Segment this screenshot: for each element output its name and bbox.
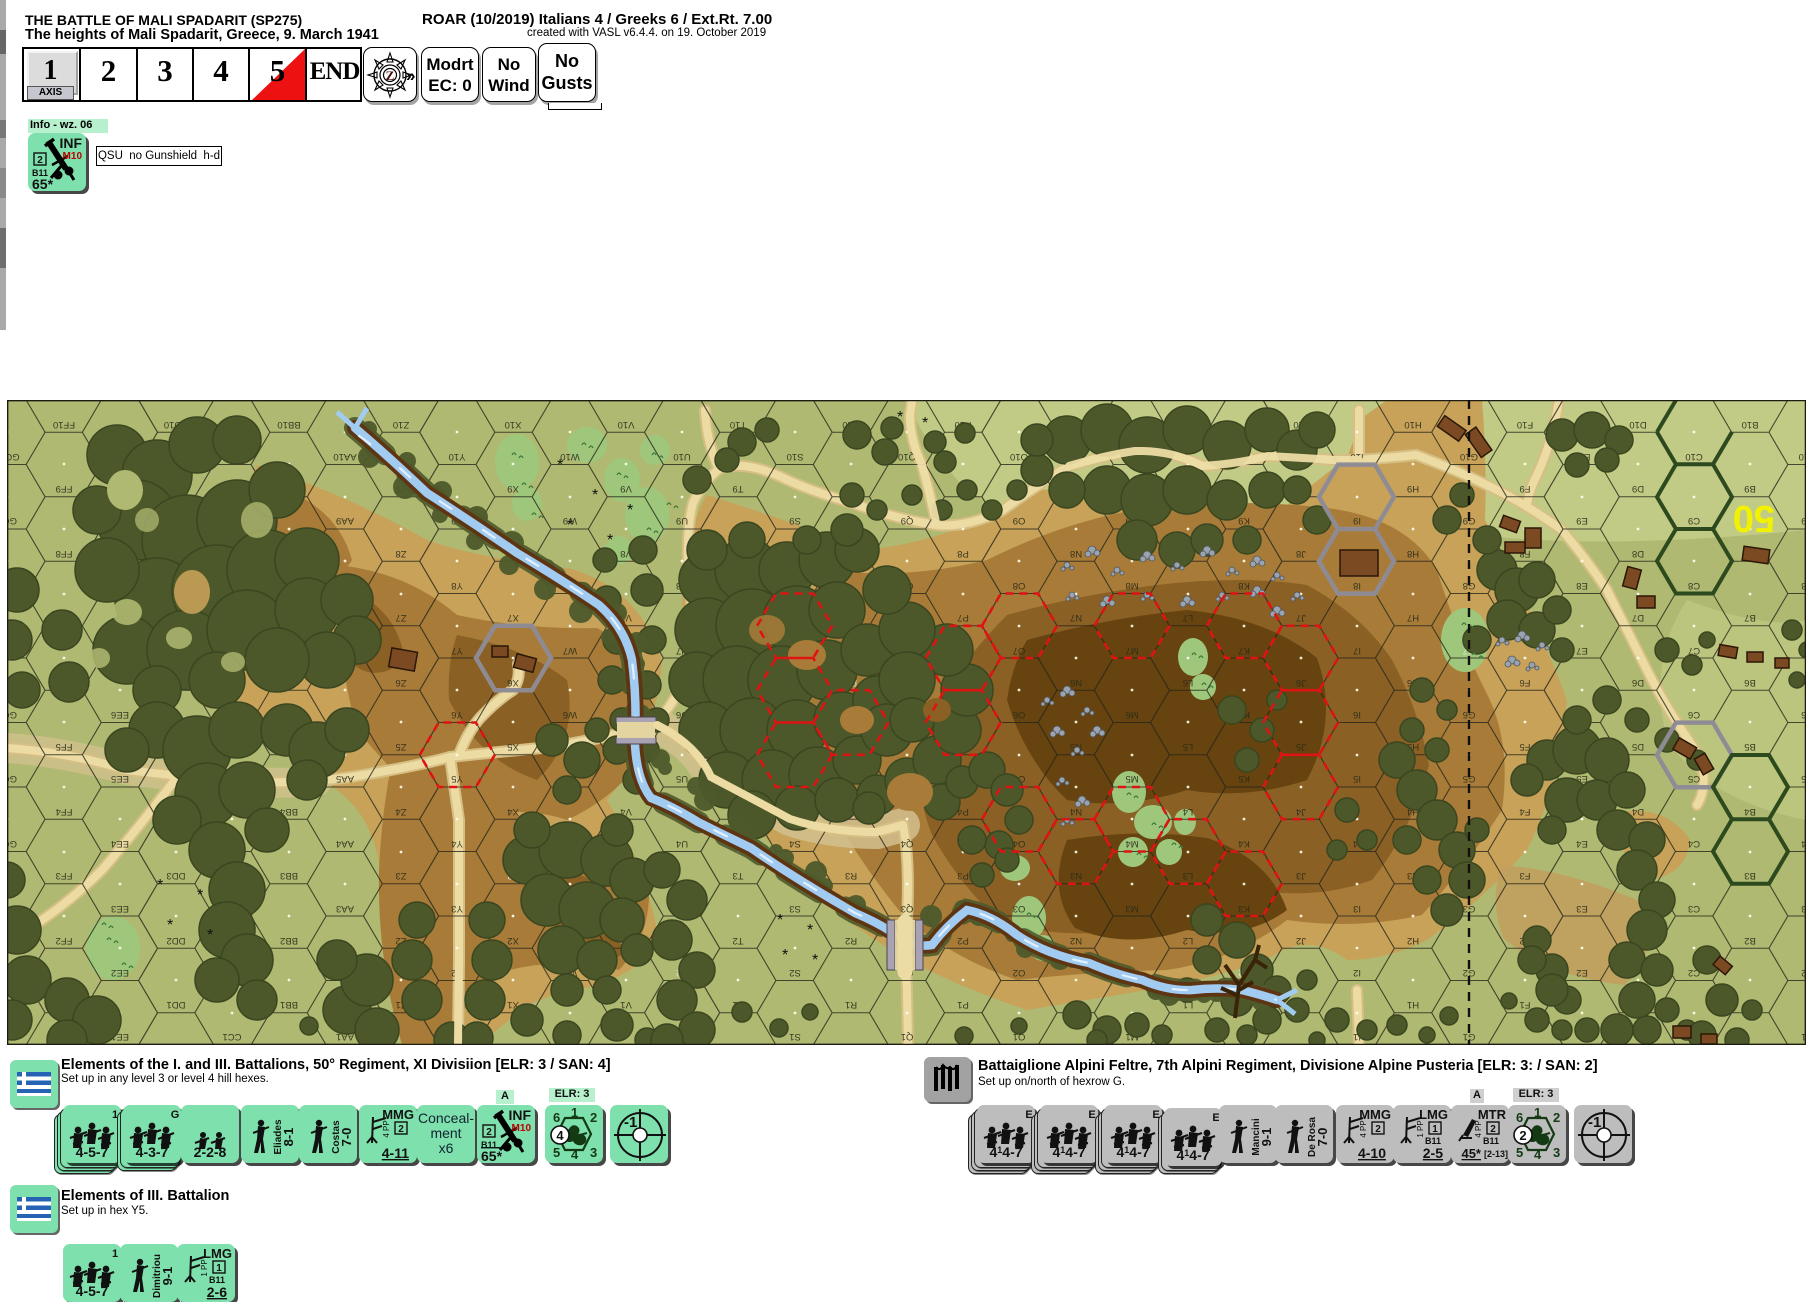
svg-text:M4: M4 <box>1125 838 1138 849</box>
svg-text:LMG: LMG <box>203 1246 232 1261</box>
svg-text:EE3: EE3 <box>111 903 129 914</box>
svg-text:N7: N7 <box>1070 612 1082 623</box>
svg-text:B3: B3 <box>1744 870 1756 881</box>
svg-text:U9: U9 <box>676 515 688 526</box>
svg-text:1: 1 <box>571 1105 578 1120</box>
svg-text:Z10: Z10 <box>393 419 409 430</box>
svg-text:K8: K8 <box>1238 580 1250 591</box>
svg-text:FF9: FF9 <box>56 483 73 494</box>
svg-text:GG10: GG10 <box>7 451 20 462</box>
svg-text:9-1: 9-1 <box>160 1267 175 1286</box>
svg-text:GG5: GG5 <box>7 773 17 784</box>
svg-text:2: 2 <box>1375 1124 1381 1135</box>
svg-text:*: * <box>167 917 173 934</box>
svg-text:GG4: GG4 <box>7 838 17 849</box>
svg-text:E9: E9 <box>1576 515 1588 526</box>
svg-text:I7: I7 <box>1353 645 1361 656</box>
svg-text:P8: P8 <box>957 548 969 559</box>
svg-text:-1: -1 <box>624 1114 637 1131</box>
svg-text:J3: J3 <box>1296 870 1306 881</box>
svg-text:5: 5 <box>1516 1145 1523 1160</box>
svg-text:Z4: Z4 <box>395 806 406 817</box>
svg-text:M5: M5 <box>1125 773 1138 784</box>
svg-text:*: * <box>777 912 783 929</box>
svg-text:AA4: AA4 <box>336 838 354 849</box>
svg-text:L4: L4 <box>1183 806 1194 817</box>
svg-text:AA10: AA10 <box>333 451 356 462</box>
svg-text:Q4: Q4 <box>901 838 914 849</box>
svg-text:2: 2 <box>1490 1124 1496 1135</box>
svg-text:4: 4 <box>571 1147 579 1162</box>
svg-text:6: 6 <box>553 1110 560 1125</box>
svg-text:F9: F9 <box>1519 483 1530 494</box>
svg-text:7-0: 7-0 <box>339 1128 354 1147</box>
svg-text:*: * <box>567 517 573 534</box>
svg-text:E3: E3 <box>1576 903 1588 914</box>
svg-text:2: 2 <box>590 1110 597 1125</box>
svg-text:K9: K9 <box>1238 515 1250 526</box>
svg-text:-1: -1 <box>1588 1114 1601 1131</box>
svg-text:Y10: Y10 <box>449 451 466 462</box>
svg-text:O6: O6 <box>1013 709 1026 720</box>
svg-text:5: 5 <box>553 1145 560 1160</box>
svg-text:Z7: Z7 <box>395 612 406 623</box>
svg-text:414-7: 414-7 <box>989 1144 1022 1160</box>
svg-text:Y5: Y5 <box>451 773 463 784</box>
svg-text:2: 2 <box>1519 1128 1526 1143</box>
svg-text:N3: N3 <box>1070 870 1082 881</box>
svg-text:Y4: Y4 <box>451 838 463 849</box>
svg-text:J8: J8 <box>1296 548 1306 559</box>
svg-text:M8: M8 <box>1125 580 1138 591</box>
svg-text:S1: S1 <box>789 1031 801 1042</box>
svg-text:U10: U10 <box>673 451 690 462</box>
svg-text:S3: S3 <box>789 903 801 914</box>
svg-text:414-7: 414-7 <box>1116 1144 1149 1160</box>
svg-text:H7: H7 <box>1407 612 1419 623</box>
svg-text:Q1: Q1 <box>901 1031 914 1042</box>
svg-text:F3: F3 <box>1519 870 1530 881</box>
svg-text:T2: T2 <box>732 935 743 946</box>
svg-text:EE2: EE2 <box>111 967 129 978</box>
svg-text:D5: D5 <box>1632 741 1644 752</box>
svg-text:S10: S10 <box>787 451 804 462</box>
svg-text:D4: D4 <box>1632 806 1644 817</box>
svg-text:O3: O3 <box>1013 903 1026 914</box>
svg-text:INF: INF <box>508 1107 531 1123</box>
svg-text:N6: N6 <box>1070 677 1082 688</box>
svg-text:FF2: FF2 <box>56 935 73 946</box>
svg-text:L2: L2 <box>1183 935 1194 946</box>
svg-text:C6: C6 <box>1688 709 1700 720</box>
svg-text:P2: P2 <box>957 935 969 946</box>
svg-text:MMG: MMG <box>382 1107 414 1122</box>
svg-text:BB2: BB2 <box>280 935 298 946</box>
svg-text:I6: I6 <box>1353 709 1361 720</box>
svg-text:*: * <box>782 947 788 964</box>
svg-text:Q9: Q9 <box>901 515 914 526</box>
svg-text:*: * <box>922 415 928 432</box>
svg-text:1: 1 <box>1534 1105 1541 1120</box>
svg-text:1: 1 <box>216 1263 222 1274</box>
svg-text:M3: M3 <box>1125 903 1138 914</box>
svg-text:X7: X7 <box>507 612 519 623</box>
svg-text:H9: H9 <box>1407 483 1419 494</box>
svg-text:X6: X6 <box>507 677 519 688</box>
svg-text:Z6: Z6 <box>395 677 406 688</box>
svg-text:FF5: FF5 <box>56 741 73 752</box>
svg-text:BB1: BB1 <box>280 999 298 1010</box>
svg-text:N4: N4 <box>1070 806 1082 817</box>
svg-text:GG9: GG9 <box>7 515 17 526</box>
svg-text:Y8: Y8 <box>451 580 463 591</box>
svg-text:4 PP: 4 PP <box>1359 1120 1368 1137</box>
svg-text:P7: P7 <box>957 612 969 623</box>
svg-text:MMG: MMG <box>1359 1107 1391 1122</box>
svg-text:C5: C5 <box>1688 773 1700 784</box>
svg-text:M10: M10 <box>63 151 83 162</box>
svg-text:M6: M6 <box>1125 709 1138 720</box>
svg-text:2: 2 <box>486 1127 492 1138</box>
svg-text:D6: D6 <box>1632 677 1644 688</box>
svg-text:L7: L7 <box>1183 612 1194 623</box>
svg-text:*: * <box>157 877 163 894</box>
svg-text:X4: X4 <box>507 806 519 817</box>
svg-text:E2: E2 <box>1576 967 1588 978</box>
svg-text:C3: C3 <box>1688 903 1700 914</box>
svg-text:D7: D7 <box>1632 612 1644 623</box>
svg-text:FF4: FF4 <box>56 806 73 817</box>
svg-text:V10: V10 <box>618 419 635 430</box>
svg-text:C8: C8 <box>1688 580 1700 591</box>
svg-text:Y3: Y3 <box>451 903 463 914</box>
svg-text:O8: O8 <box>1013 580 1026 591</box>
svg-text:INF: INF <box>59 135 82 151</box>
svg-text:N8: N8 <box>1070 548 1082 559</box>
svg-text:O2: O2 <box>1013 967 1026 978</box>
svg-text:S9: S9 <box>789 515 801 526</box>
svg-text:4-11: 4-11 <box>382 1145 409 1161</box>
svg-text:T3: T3 <box>732 870 743 881</box>
svg-text:DD3: DD3 <box>166 870 185 881</box>
svg-text:J4: J4 <box>1296 806 1306 817</box>
svg-text:H1: H1 <box>1407 999 1419 1010</box>
svg-text:H10: H10 <box>1404 419 1421 430</box>
svg-text:J6: J6 <box>1296 677 1306 688</box>
svg-text:AA5: AA5 <box>336 773 354 784</box>
svg-text:65*: 65* <box>481 1148 503 1163</box>
svg-text:C7: C7 <box>1688 645 1700 656</box>
svg-text:BB10: BB10 <box>277 419 300 430</box>
svg-text:AA9: AA9 <box>336 515 354 526</box>
svg-text:K4: K4 <box>1238 838 1250 849</box>
svg-text:X2: X2 <box>507 935 519 946</box>
svg-text:D8: D8 <box>1632 548 1644 559</box>
svg-text:AA3: AA3 <box>336 903 354 914</box>
svg-text:Q3: Q3 <box>901 903 914 914</box>
svg-text:4-3-7: 4-3-7 <box>136 1144 169 1160</box>
svg-text:B2: B2 <box>1744 935 1756 946</box>
svg-text:S2: S2 <box>789 967 801 978</box>
svg-text:4: 4 <box>1534 1147 1542 1162</box>
svg-text:E7: E7 <box>1576 645 1588 656</box>
svg-text:C9: C9 <box>1688 515 1700 526</box>
svg-text:4-5-7: 4-5-7 <box>76 1144 109 1160</box>
svg-text:B9: B9 <box>1744 483 1756 494</box>
svg-text:*: * <box>207 927 213 944</box>
svg-text:EE5: EE5 <box>111 773 129 784</box>
svg-text:50: 50 <box>1733 497 1775 539</box>
svg-text:O9: O9 <box>1013 515 1026 526</box>
svg-text:I3: I3 <box>1353 903 1361 914</box>
svg-text:I8: I8 <box>1353 580 1361 591</box>
svg-text:4: 4 <box>556 1128 564 1143</box>
svg-text:J5: J5 <box>1296 741 1306 752</box>
svg-text:4-10: 4-10 <box>1358 1145 1386 1161</box>
svg-text:[2-13]: [2-13] <box>1484 1149 1508 1159</box>
svg-text:2-6: 2-6 <box>207 1284 227 1300</box>
svg-text:*: * <box>807 922 813 939</box>
svg-text:B10: B10 <box>1742 419 1759 430</box>
svg-text:U5: U5 <box>676 773 688 784</box>
svg-text:W6: W6 <box>563 709 577 720</box>
svg-text:V1: V1 <box>620 999 632 1010</box>
svg-text:2: 2 <box>1553 1110 1560 1125</box>
svg-text:*: * <box>607 532 613 549</box>
svg-text:1: 1 <box>1432 1124 1438 1135</box>
svg-text:M7: M7 <box>1125 645 1138 656</box>
svg-text:B11: B11 <box>1483 1136 1499 1146</box>
svg-text:D9: D9 <box>1632 483 1644 494</box>
svg-text:Y7: Y7 <box>451 645 463 656</box>
svg-text:9-1: 9-1 <box>1259 1128 1274 1147</box>
svg-text:B6: B6 <box>1744 677 1756 688</box>
svg-text:H2: H2 <box>1407 935 1419 946</box>
svg-text:4-5-7: 4-5-7 <box>76 1283 109 1299</box>
svg-text:3: 3 <box>1553 1145 1560 1160</box>
svg-text:4 PP: 4 PP <box>382 1120 391 1137</box>
svg-text:K5: K5 <box>1238 773 1250 784</box>
svg-text:L5: L5 <box>1183 741 1194 752</box>
svg-text:3: 3 <box>590 1145 597 1160</box>
svg-text:O7: O7 <box>1013 645 1026 656</box>
svg-text:X9: X9 <box>507 483 519 494</box>
svg-text:C10: C10 <box>1685 451 1702 462</box>
svg-text:U4: U4 <box>676 838 688 849</box>
svg-text:*: * <box>627 502 633 519</box>
svg-text:Z5: Z5 <box>395 741 406 752</box>
svg-text:DD2: DD2 <box>166 935 185 946</box>
svg-text:K3: K3 <box>1238 903 1250 914</box>
svg-text:X5: X5 <box>507 741 519 752</box>
svg-text:R3: R3 <box>845 870 857 881</box>
svg-text:D10: D10 <box>1629 419 1646 430</box>
svg-text:N2: N2 <box>1070 935 1082 946</box>
svg-text:C4: C4 <box>1688 838 1700 849</box>
svg-text:B4: B4 <box>1744 806 1756 817</box>
svg-text:LMG: LMG <box>1419 1107 1448 1122</box>
svg-text:FF3: FF3 <box>56 870 73 881</box>
svg-text:T9: T9 <box>732 483 743 494</box>
svg-text:K7: K7 <box>1238 645 1250 656</box>
svg-text:*: * <box>592 487 598 504</box>
svg-text:*: * <box>197 887 203 904</box>
svg-text:G: G <box>171 1109 180 1121</box>
svg-text:L6: L6 <box>1183 677 1194 688</box>
svg-text:S4: S4 <box>789 838 801 849</box>
svg-text:F6: F6 <box>1519 677 1530 688</box>
svg-text:F10: F10 <box>1517 419 1533 430</box>
svg-text:1: 1 <box>112 1248 118 1260</box>
svg-text:EE4: EE4 <box>111 838 129 849</box>
svg-text:V9: V9 <box>620 483 632 494</box>
svg-text:7-0: 7-0 <box>1315 1128 1330 1147</box>
svg-text:EE6: EE6 <box>111 709 129 720</box>
svg-text:DD1: DD1 <box>166 999 185 1010</box>
svg-text:P1: P1 <box>957 999 969 1010</box>
svg-text:B5: B5 <box>1744 741 1756 752</box>
svg-text:6: 6 <box>1516 1110 1523 1125</box>
svg-text:J7: J7 <box>1296 612 1306 623</box>
svg-text:E4: E4 <box>1576 838 1588 849</box>
svg-text:F1: F1 <box>1519 999 1530 1010</box>
svg-text:M10: M10 <box>512 1123 532 1134</box>
svg-text:Z3: Z3 <box>395 870 406 881</box>
svg-text:GG6: GG6 <box>7 709 17 720</box>
svg-text:J2: J2 <box>1296 935 1306 946</box>
svg-text:414-7: 414-7 <box>1052 1144 1085 1160</box>
svg-text:»: » <box>406 66 415 85</box>
svg-text:I9: I9 <box>1353 515 1361 526</box>
svg-text:Y6: Y6 <box>451 709 463 720</box>
svg-text:1 PP: 1 PP <box>1416 1120 1425 1137</box>
svg-text:MTR: MTR <box>1478 1107 1507 1122</box>
svg-text:Z: Z <box>386 68 395 83</box>
svg-text:65*: 65* <box>32 176 54 191</box>
svg-text:O4: O4 <box>1013 838 1026 849</box>
svg-text:X10: X10 <box>505 419 522 430</box>
svg-text:F4: F4 <box>1519 806 1530 817</box>
svg-text:H8: H8 <box>1407 548 1419 559</box>
svg-text:P3: P3 <box>957 870 969 881</box>
svg-text:414-7: 414-7 <box>1176 1147 1209 1163</box>
svg-text:2-2-8: 2-2-8 <box>194 1144 227 1160</box>
svg-text:2: 2 <box>37 155 43 166</box>
svg-text:CC1: CC1 <box>222 1031 241 1042</box>
svg-text:I2: I2 <box>1353 967 1361 978</box>
svg-text:*: * <box>897 409 903 426</box>
svg-text:*: * <box>812 952 818 969</box>
svg-text:FF10: FF10 <box>53 419 75 430</box>
svg-text:*: * <box>557 457 563 474</box>
svg-text:2-5: 2-5 <box>1423 1145 1443 1161</box>
svg-text:4 PP: 4 PP <box>1474 1120 1483 1137</box>
svg-text:R1: R1 <box>845 999 857 1010</box>
svg-text:1 PP: 1 PP <box>200 1259 209 1276</box>
svg-text:Z8: Z8 <box>395 548 406 559</box>
svg-text:8-1: 8-1 <box>281 1128 296 1147</box>
svg-text:2: 2 <box>398 1124 404 1135</box>
svg-text:FF8: FF8 <box>56 548 73 559</box>
svg-text:B7: B7 <box>1744 612 1756 623</box>
svg-text:R2: R2 <box>845 935 857 946</box>
svg-text:BB3: BB3 <box>280 870 298 881</box>
svg-text:E8: E8 <box>1576 580 1588 591</box>
svg-text:W7: W7 <box>563 645 577 656</box>
svg-text:45*: 45* <box>1461 1146 1481 1161</box>
svg-text:L3: L3 <box>1183 870 1194 881</box>
svg-text:I5: I5 <box>1353 773 1361 784</box>
